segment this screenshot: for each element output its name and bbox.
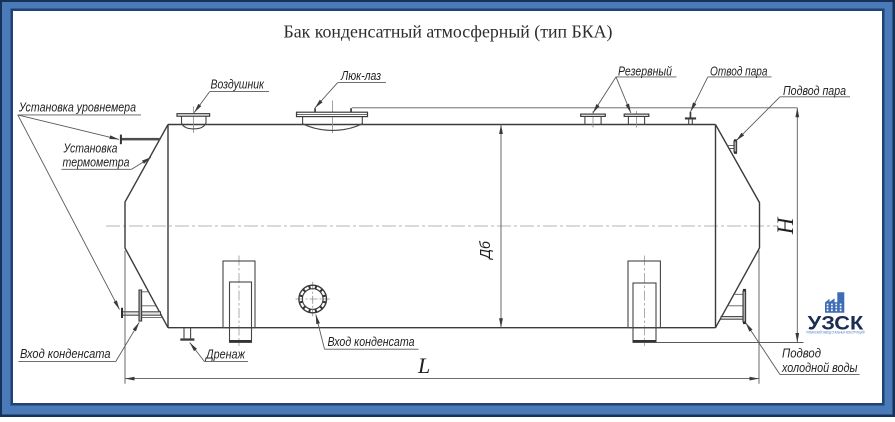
svg-text:Отвод пара: Отвод пара [710,63,768,78]
svg-text:Подвод пара: Подвод пара [783,83,846,98]
svg-text:Установка уровнемера: Установка уровнемера [18,99,136,114]
svg-text:Подвод: Подвод [782,346,821,361]
svg-text:Дренаж: Дренаж [204,346,246,361]
svg-text:холодной воды: холодной воды [781,360,858,375]
svg-text:Дб: Дб [478,240,494,260]
svg-text:Люк-лаз: Люк-лаз [340,68,381,83]
svg-text:Установка: Установка [63,141,118,156]
svg-text:Вход конденсата: Вход конденсата [20,346,111,361]
svg-text:Воздушник: Воздушник [211,76,265,91]
svg-text:Вход конденсата: Вход конденсата [328,334,415,349]
svg-text:Резервный: Резервный [618,63,672,78]
svg-text:Бак конденсатный атмосферный (: Бак конденсатный атмосферный (тип БКА) [284,22,613,42]
svg-text:L: L [417,353,430,378]
svg-text:термометра: термометра [63,155,130,170]
svg-text:РЯЗАНСКИЙ ЗАВОД СТАЛЬНЫХ КОНСТ: РЯЗАНСКИЙ ЗАВОД СТАЛЬНЫХ КОНСТРУКЦИЙ [807,331,865,335]
svg-text:H: H [773,216,798,235]
